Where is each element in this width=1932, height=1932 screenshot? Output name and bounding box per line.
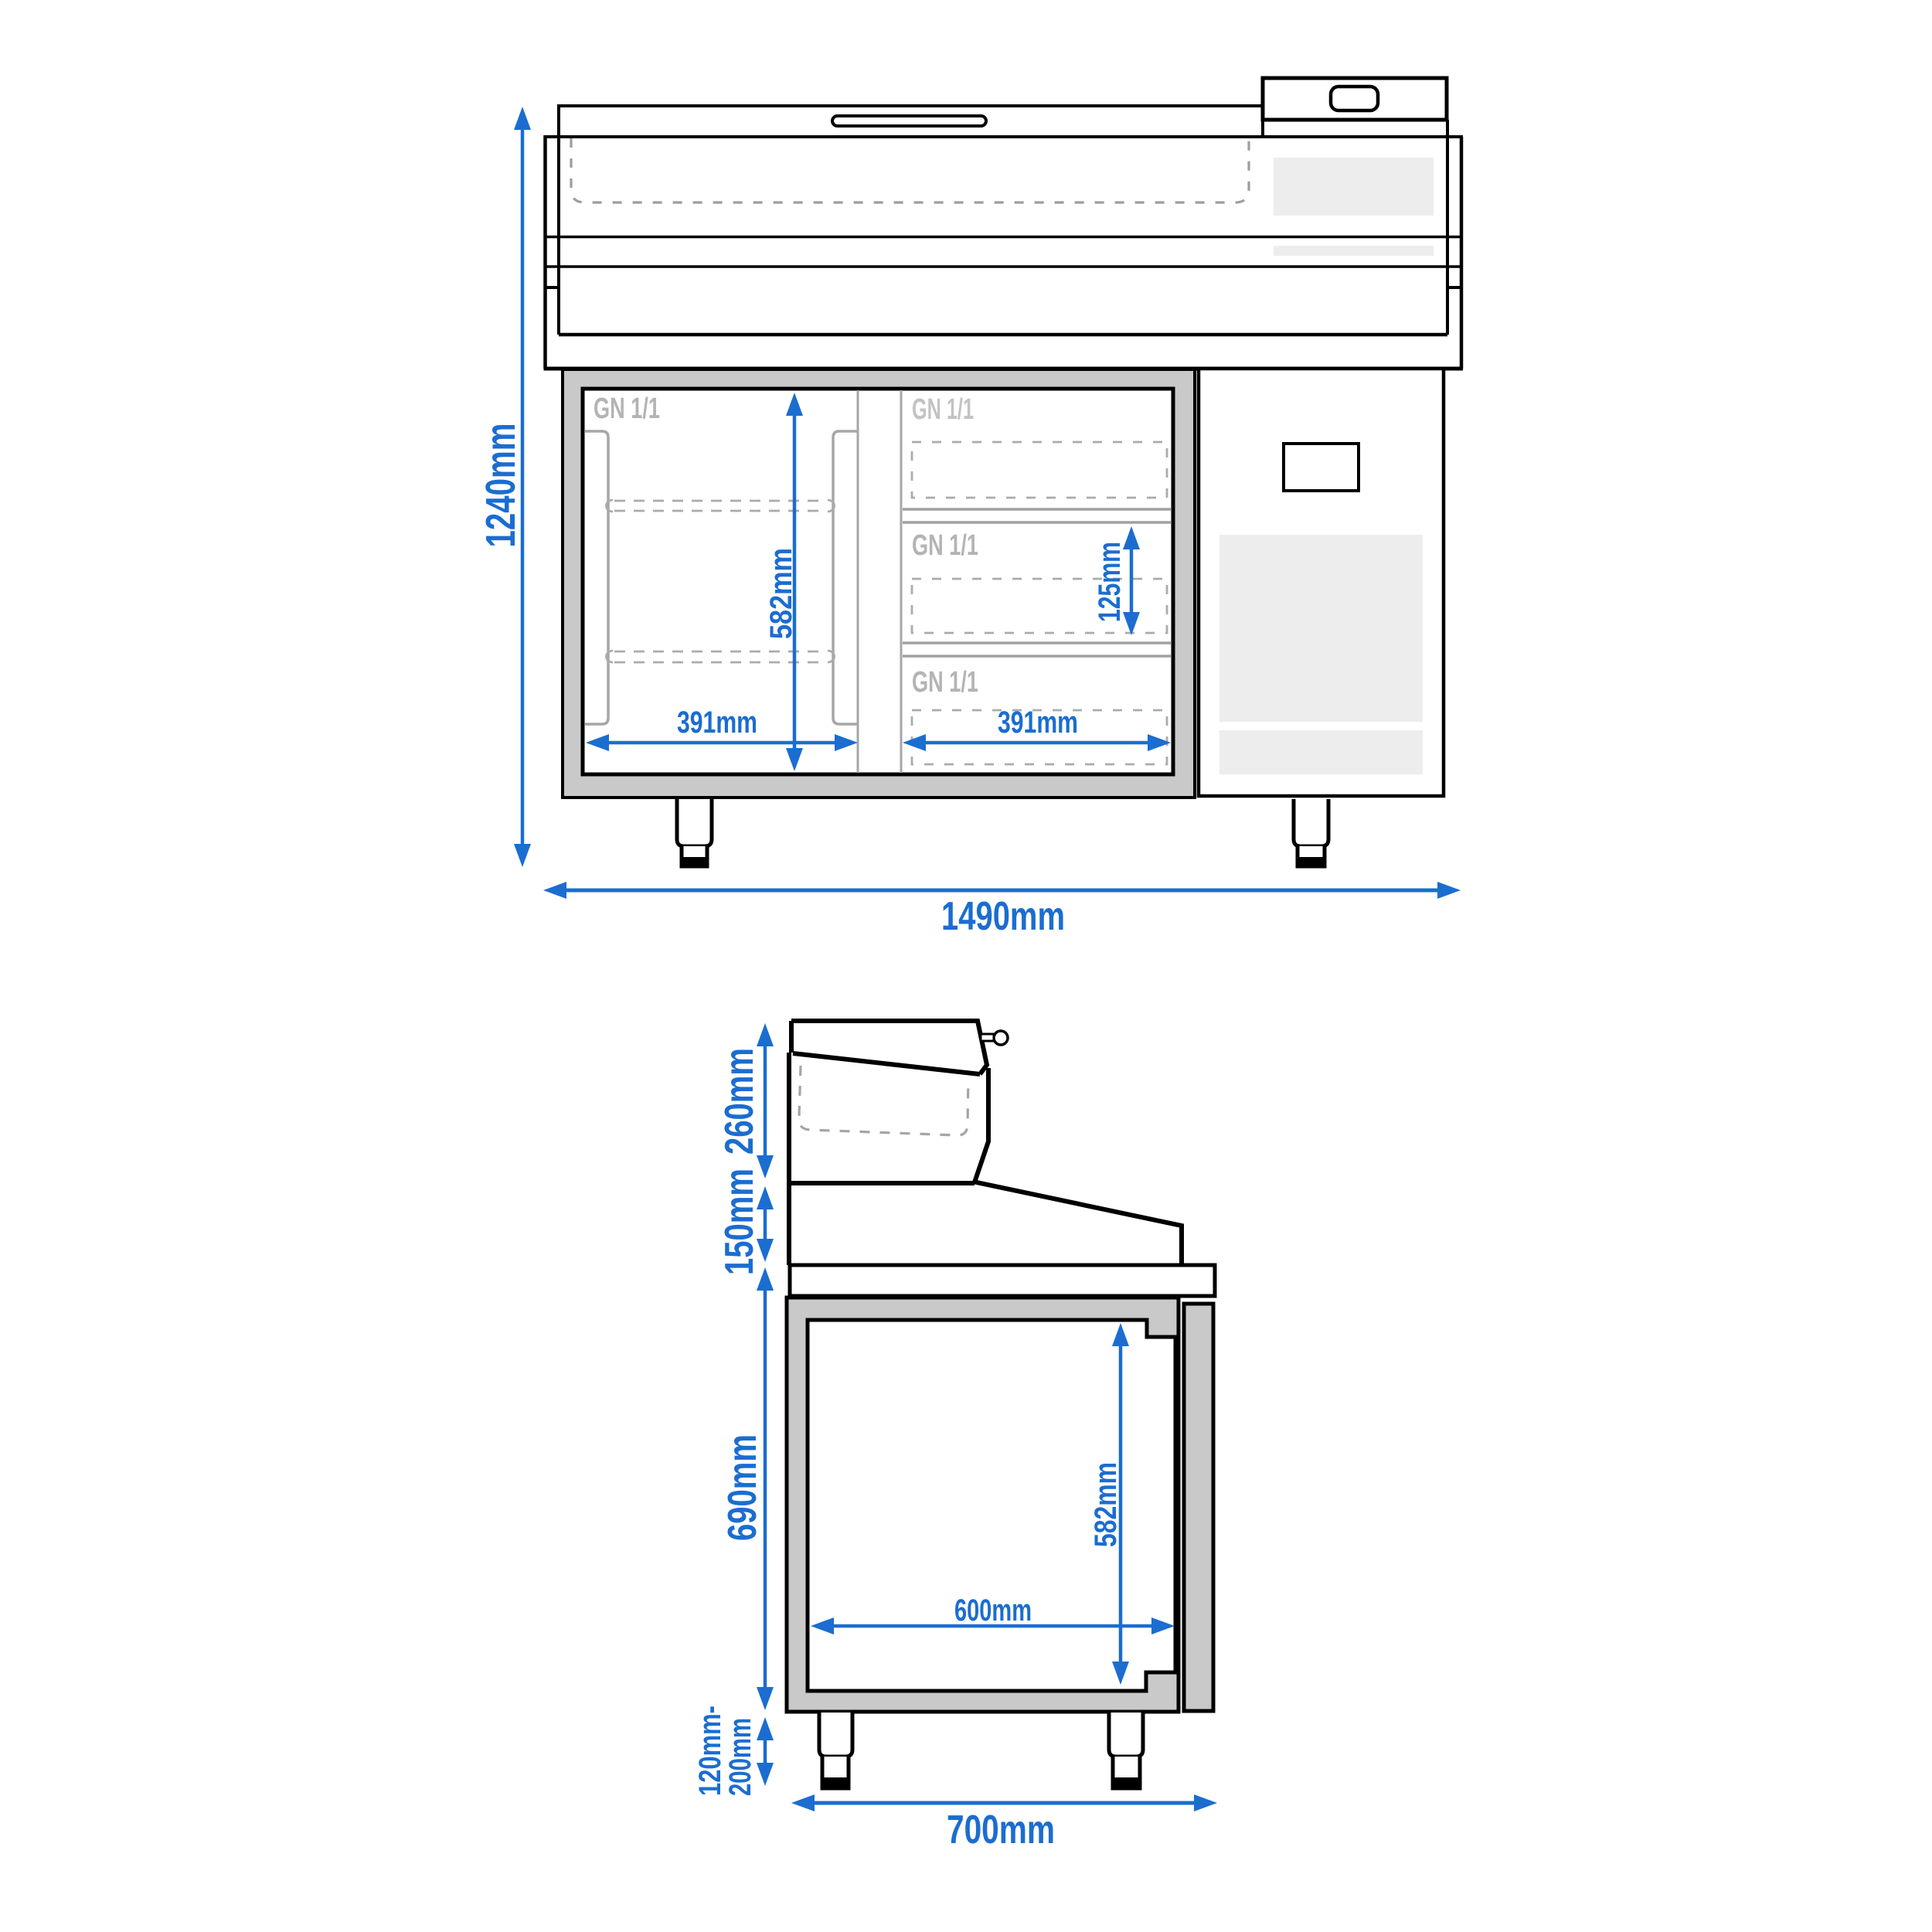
svg-text:GN 1/1: GN 1/1 [912,529,978,562]
svg-text:391mm: 391mm [677,706,757,740]
svg-text:GN 1/1: GN 1/1 [912,393,974,426]
svg-text:700mm: 700mm [947,1808,1055,1852]
svg-text:GN 1/1: GN 1/1 [912,666,978,699]
svg-text:260mm: 260mm [717,1048,762,1155]
svg-text:582mm: 582mm [764,548,798,639]
svg-text:1490mm: 1490mm [941,894,1065,939]
svg-text:391mm: 391mm [998,706,1078,740]
svg-text:690mm: 690mm [720,1434,765,1541]
svg-text:600mm: 600mm [954,1594,1032,1628]
svg-text:200mm: 200mm [723,1718,757,1796]
svg-text:GN 1/1: GN 1/1 [594,393,660,425]
svg-text:125mm: 125mm [1093,542,1127,622]
svg-text:582mm: 582mm [1089,1462,1123,1547]
svg-text:120mm-: 120mm- [693,1706,727,1796]
svg-text:150mm: 150mm [717,1168,762,1275]
svg-text:1240mm: 1240mm [478,423,524,548]
